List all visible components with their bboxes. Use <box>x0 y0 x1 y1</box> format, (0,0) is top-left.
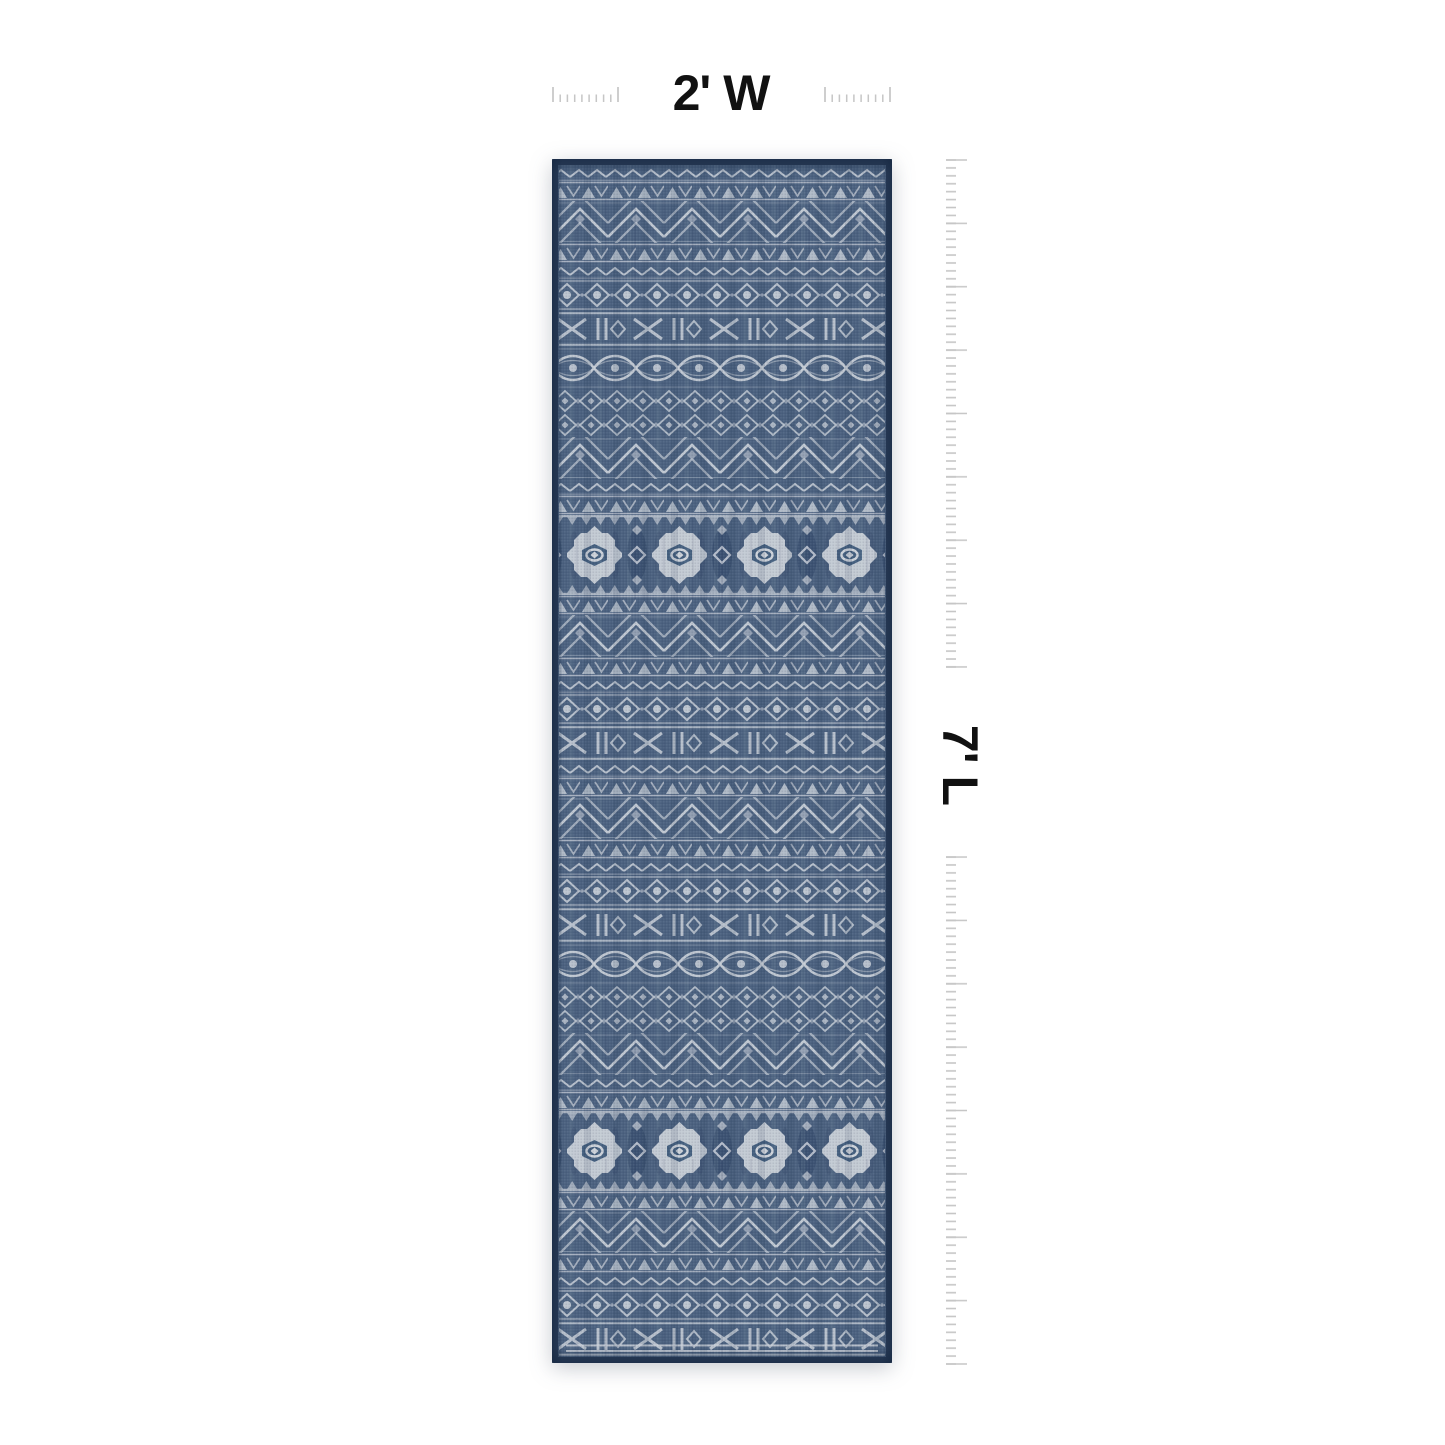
width-ruler-left-icon <box>552 84 619 104</box>
width-label: 2' W <box>673 64 770 122</box>
width-ruler-right-icon <box>824 84 891 104</box>
product-dimension-view: 2' W <box>0 0 1445 1445</box>
length-label: 7' L <box>931 725 989 805</box>
rug-image <box>552 159 892 1363</box>
